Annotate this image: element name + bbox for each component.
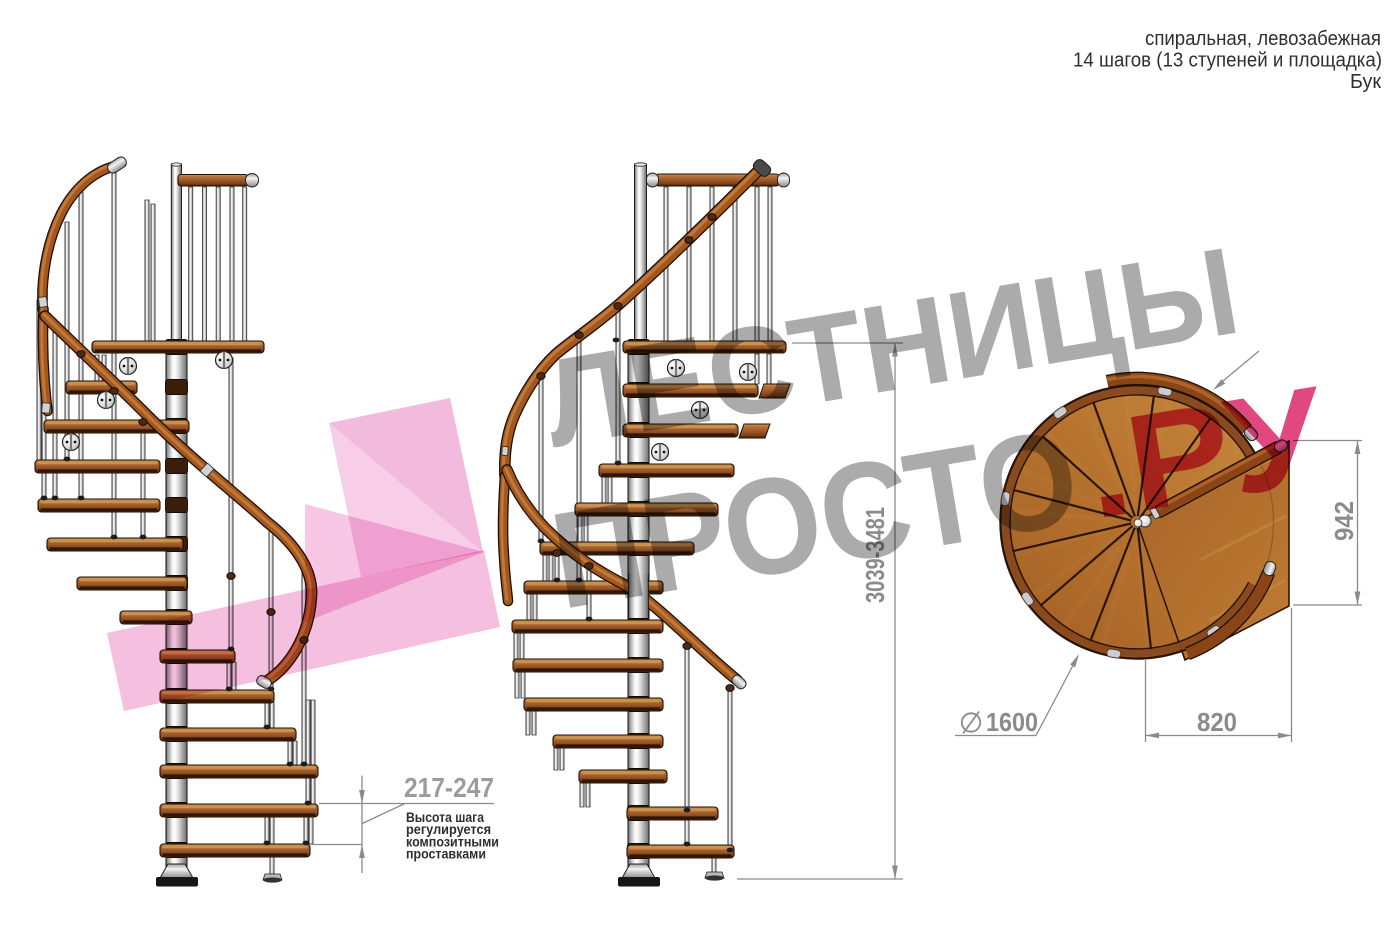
- svg-text:217-247: 217-247: [404, 772, 494, 803]
- svg-text:14 шагов (13 ступеней и площад: 14 шагов (13 ступеней и площадка): [1073, 50, 1382, 72]
- svg-text:820: 820: [1197, 707, 1237, 737]
- svg-text:1600: 1600: [986, 707, 1038, 737]
- svg-text:спиральная, левозабежная: спиральная, левозабежная: [1145, 28, 1381, 50]
- svg-text:Бук: Бук: [1350, 71, 1381, 93]
- svg-text:проставками: проставками: [406, 846, 486, 862]
